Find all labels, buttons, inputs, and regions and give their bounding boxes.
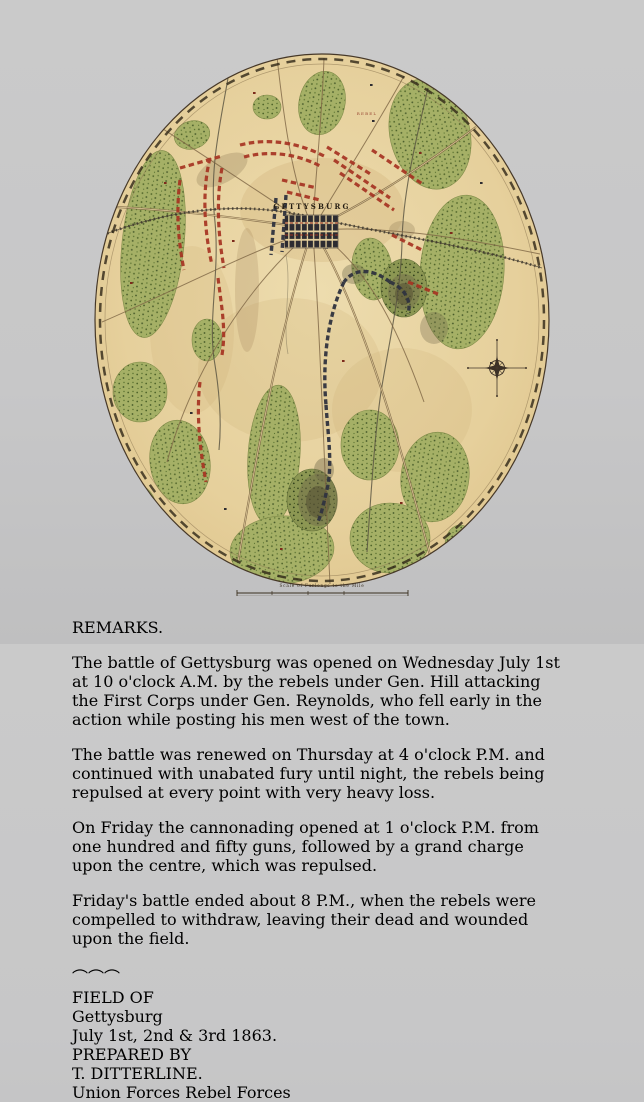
cartouche-prepared-by: PREPARED BY xyxy=(72,1045,566,1064)
town-label: GETTYSBURG xyxy=(273,202,350,211)
map-legend: Union Forces Rebel Forces xyxy=(72,1083,566,1102)
remarks-box: REMARKS. The battle of Gettysburg was op… xyxy=(72,618,566,948)
title-cartouche: ⌒⌒⌒ FIELD OF Gettysburg July 1st, 2nd & … xyxy=(72,964,566,1102)
map-poster: GETTYSBURG REBEL Scale of Furlongs to th… xyxy=(72,30,566,614)
cartouche-title: Gettysburg xyxy=(72,1007,566,1026)
flourish-ornament: ⌒⌒⌒ xyxy=(72,964,566,988)
battlefield-map: GETTYSBURG REBEL Scale of Furlongs to th… xyxy=(72,30,566,614)
cartouche-dates: July 1st, 2nd & 3rd 1863. xyxy=(72,1026,566,1045)
remarks-paragraph: The battle of Gettysburg was opened on W… xyxy=(72,653,566,729)
remarks-paragraph: On Friday the cannonading opened at 1 o'… xyxy=(72,818,566,875)
remarks-text: The battle of Gettysburg was opened on W… xyxy=(72,653,566,948)
cartouche-field-of: FIELD OF xyxy=(72,988,566,1007)
cartouche-author: T. DITTERLINE. xyxy=(72,1064,566,1083)
town-grid xyxy=(285,215,338,248)
rebel-label: REBEL xyxy=(357,111,377,116)
remarks-paragraph: The battle was renewed on Thursday at 4 … xyxy=(72,745,566,802)
remarks-paragraph: Friday's battle ended about 8 P.M., when… xyxy=(72,891,566,948)
legend-rebel-label: Rebel Forces xyxy=(185,1083,291,1102)
svg-text:Scale of Furlongs to the Mile: Scale of Furlongs to the Mile xyxy=(280,583,365,588)
legend-union: Union Forces xyxy=(72,1083,185,1102)
legend-union-label: Union Forces xyxy=(72,1083,180,1102)
scale-bar: Scale of Furlongs to the Mile xyxy=(237,583,408,596)
legend-rebel: Rebel Forces xyxy=(185,1083,291,1102)
remarks-title: REMARKS. xyxy=(72,618,566,637)
